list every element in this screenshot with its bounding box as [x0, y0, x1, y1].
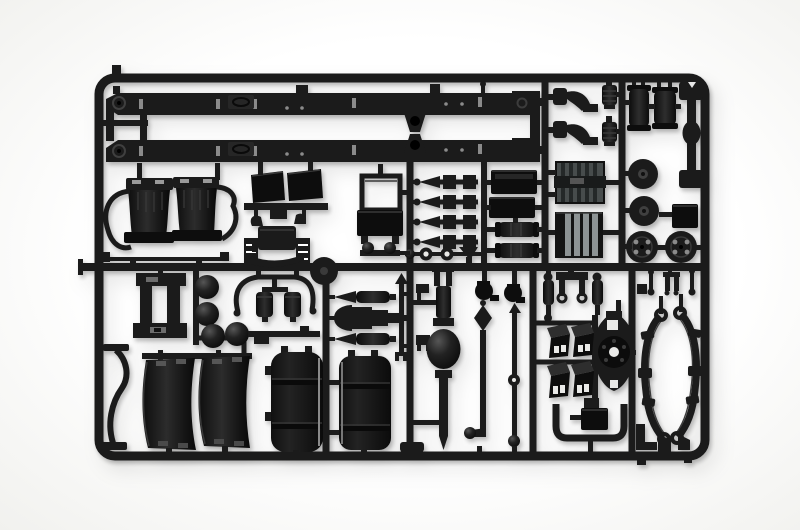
flanged-wheel-2 [656, 231, 701, 263]
fender-half-2 [198, 350, 250, 456]
track-rod [508, 303, 521, 456]
washer-chain [405, 247, 481, 265]
pulley-disc-1 [625, 159, 658, 189]
air-tank-2 [648, 81, 678, 129]
clamp-1 [416, 284, 429, 300]
ribbed-panel-lower [545, 212, 622, 258]
mini-block [637, 284, 647, 294]
air-reservoir-1 [484, 218, 545, 237]
brake-chamber-2 [326, 333, 396, 345]
crossmember-bracket [133, 267, 187, 338]
rail-end-link [530, 110, 540, 144]
leaf-spring-2 [672, 294, 702, 443]
filter-canister-2 [284, 292, 301, 317]
shock-absorber-1 [543, 267, 554, 322]
fuel-tank-half-2 [326, 350, 391, 456]
shock-absorber-2 [592, 273, 603, 316]
double-fender [106, 163, 257, 252]
exhaust-hook [101, 344, 129, 450]
storage-box [570, 408, 608, 430]
junction-disc [310, 257, 338, 285]
step-bracket-1 [547, 324, 570, 358]
step-bracket-3 [547, 362, 570, 398]
equalizer-beam [675, 82, 703, 188]
engine-mount-1 [545, 88, 598, 112]
u-joint-yoke-2 [504, 267, 525, 303]
engine-mount-2 [545, 121, 598, 145]
u-joint-yoke-1 [475, 267, 499, 301]
sprue [78, 65, 705, 465]
intake-arch [234, 267, 317, 322]
filter-canister-1 [256, 292, 273, 317]
battery-box-1 [484, 170, 545, 194]
flanged-wheel-1 [624, 231, 658, 263]
fuel-tank-half-1 [265, 346, 323, 457]
torque-rods [410, 175, 478, 249]
gearbox-cone [326, 305, 408, 331]
step-bracket-4 [571, 361, 594, 397]
ribbed-panel-upper [545, 162, 622, 203]
torque-rod-3 [410, 215, 478, 229]
bell-bracket-pair [404, 113, 426, 153]
air-tank-1 [622, 79, 651, 131]
brake-chamber-1 [326, 291, 396, 303]
photo-background [0, 0, 800, 530]
step-bracket-2 [571, 323, 594, 357]
hanger-fork [663, 267, 680, 296]
chassis-rail-lower [106, 110, 545, 162]
towing-knobs [360, 242, 410, 256]
drag-link [464, 300, 492, 456]
fender-half-1 [142, 350, 196, 456]
chassis-rail-upper [106, 81, 545, 115]
clevis-bracket [556, 267, 588, 302]
hub-cap-box [659, 204, 698, 228]
ball-rod [225, 322, 320, 346]
pulley-disc-2 [625, 196, 659, 226]
spring-foot-2 [678, 434, 690, 450]
hanger-pin-1 [648, 268, 655, 296]
battery-box-2 [484, 197, 545, 218]
hanger-pin-2 [689, 267, 696, 296]
torque-rod-2 [410, 195, 478, 209]
leaf-spring-1 [638, 296, 669, 444]
torque-rod-1 [410, 175, 478, 189]
radiator-frame [357, 164, 410, 244]
sprue-photo [0, 0, 800, 530]
torque-rod-4 [410, 235, 478, 249]
air-reservoir-2 [484, 243, 545, 258]
